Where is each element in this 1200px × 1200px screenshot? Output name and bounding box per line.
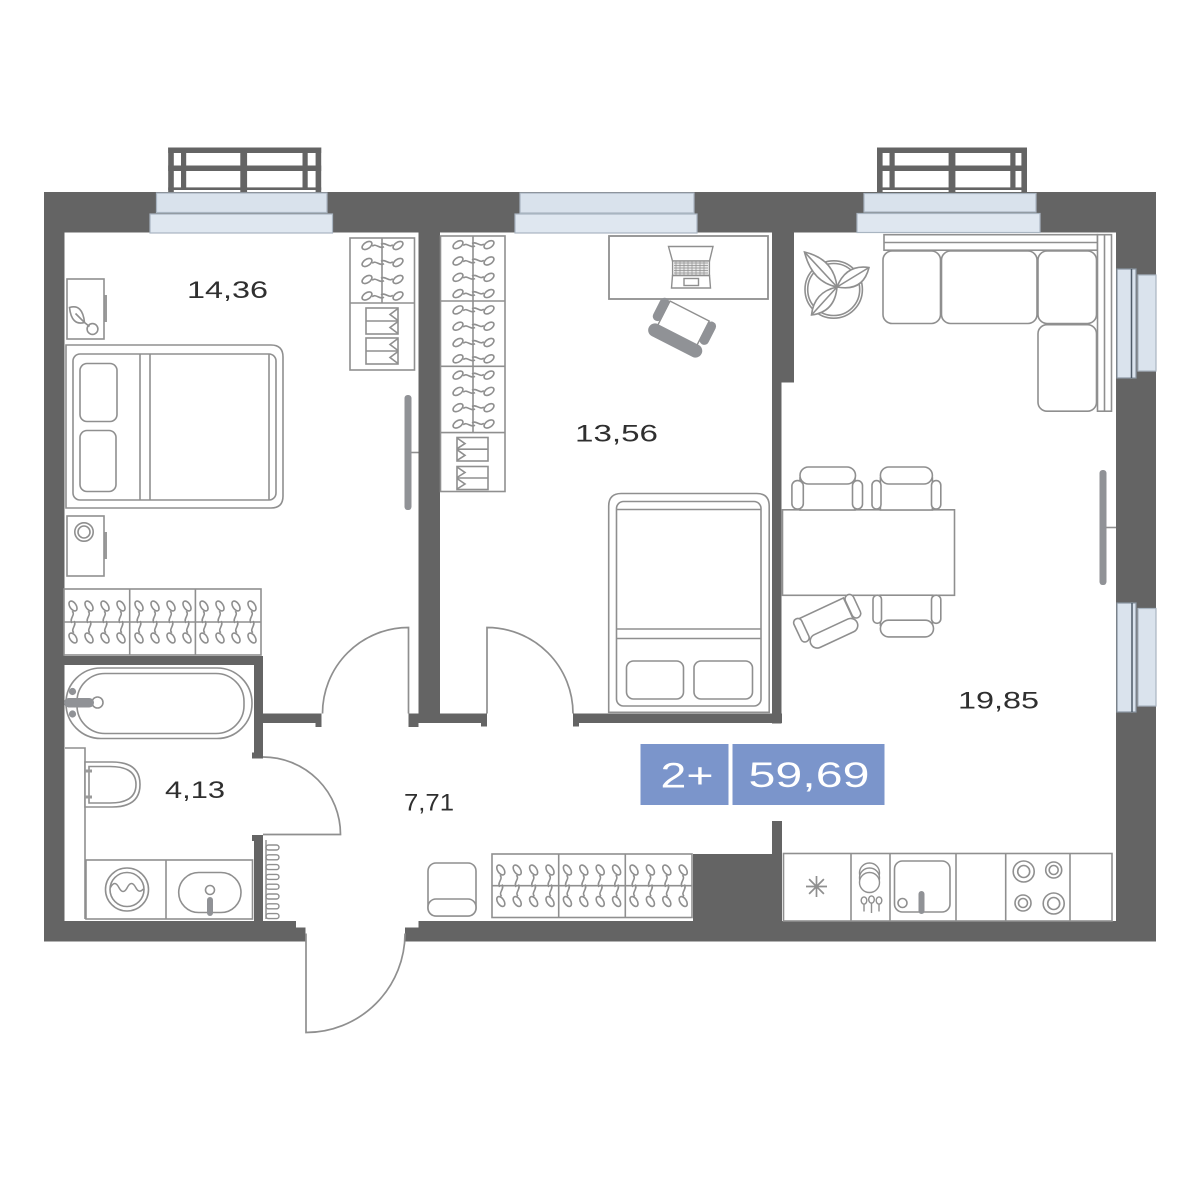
svg-text:14,36: 14,36 [187,277,268,304]
svg-text:13,56: 13,56 [575,421,658,448]
svg-text:59,69: 59,69 [749,756,870,795]
svg-text:2+: 2+ [661,757,714,796]
svg-text:4,13: 4,13 [165,777,225,804]
svg-text:19,85: 19,85 [958,688,1039,715]
svg-text:7,71: 7,71 [404,790,454,817]
